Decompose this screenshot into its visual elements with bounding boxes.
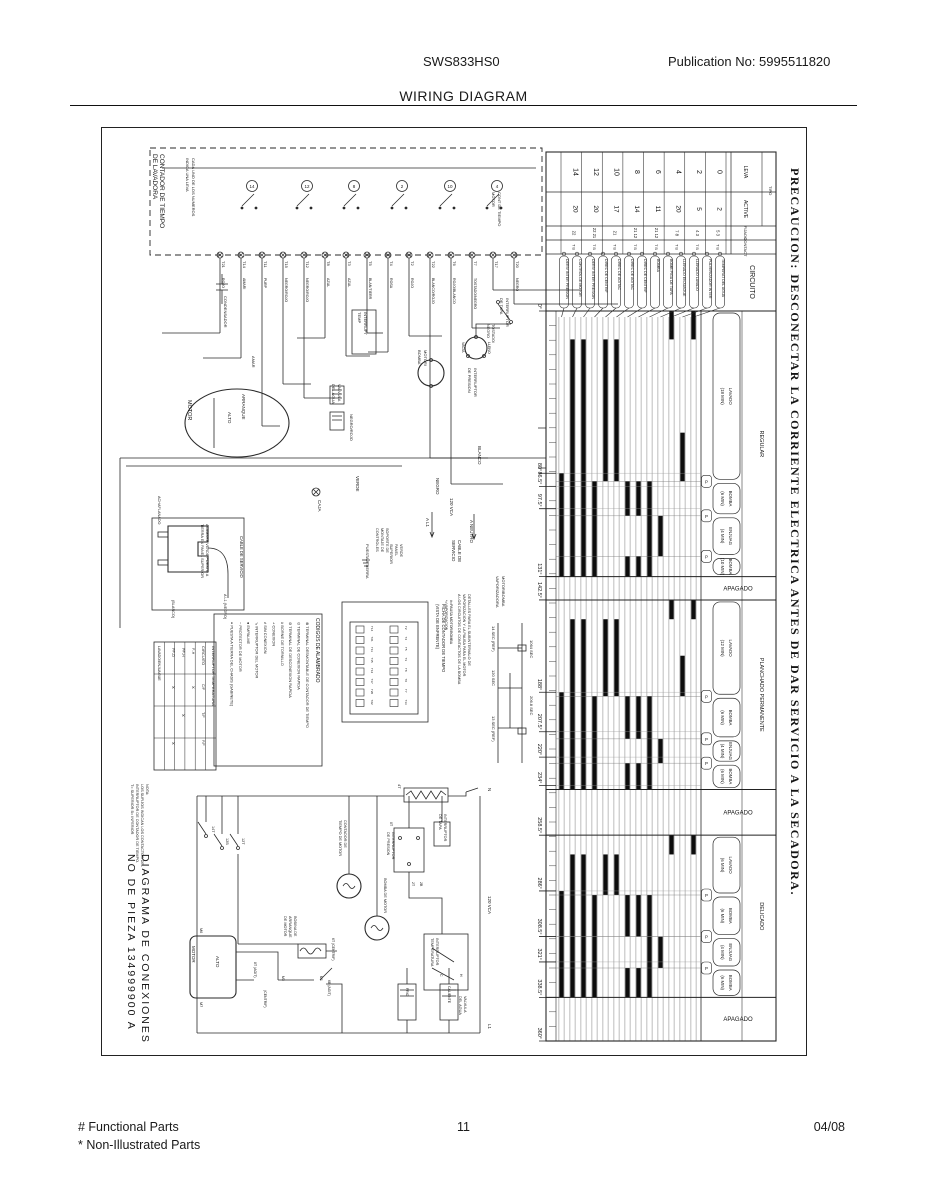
cycle-section-label: DELICADO (758, 902, 764, 931)
active-value: 17 (613, 205, 620, 213)
chart-element (617, 308, 630, 317)
cycle-off-label: APAGADO (723, 586, 753, 592)
motor-alto-label: ALTO (227, 412, 232, 424)
leva-value: 0 (716, 170, 723, 174)
wiring-diagram-box: PRECAUCION: DESCONECTAR LA CORRIENTE ELE… (101, 127, 807, 1056)
fijado-value: 4 3 (695, 230, 700, 236)
cam-closure-bar (658, 739, 662, 763)
connector-pin (390, 689, 398, 696)
connector-pin (356, 689, 364, 696)
phase-label: ENJUAG (728, 527, 733, 545)
active-value: 20 (674, 205, 681, 213)
neutral-terminal: N (487, 788, 492, 791)
temp-table-col-label: F/F (201, 740, 205, 746)
leva-value: 4 (674, 170, 681, 174)
contact-value: T B (613, 244, 617, 250)
legend-item: ⊙ TERMINAL DE CONEXION RAPIDA (297, 622, 302, 690)
water-valve-label1: VALVULA (337, 384, 342, 402)
chart-element (242, 194, 254, 206)
terminal-id-label: T3 (347, 261, 352, 266)
phase-label: ENJUAG (728, 742, 733, 760)
cold-valve-label: FRIO (405, 988, 409, 997)
green-panel-label3: SUPERIOR (389, 544, 393, 564)
contact-value: T B (633, 244, 637, 250)
chart-element (672, 308, 695, 317)
wire-color-label: AZUL (326, 278, 330, 287)
connector-pin-label: T15 (370, 658, 374, 664)
connector-pin (356, 647, 364, 654)
phase-label: LAVADO (728, 640, 733, 658)
cam-closure-bar (636, 895, 640, 937)
lid-switch-label2: DE TAPA (499, 298, 504, 315)
vaporizer-note2: VAPORIZADORA (495, 576, 500, 608)
circuit-label: CONTROL DE MOTOR (578, 259, 582, 297)
cam-closure-bar (669, 311, 673, 339)
chart-element (694, 308, 721, 317)
cam-closure-bar (581, 854, 585, 997)
cam-number: 10 (447, 184, 453, 189)
cam-contact-dot (241, 207, 244, 210)
green-ground-wire1: ALAMBRE VERDE PUESTO A (205, 524, 209, 577)
connector-pin-label: T14 (370, 626, 374, 632)
motor-arranque-label: ARRANQUE (241, 394, 246, 420)
connector-pin (390, 668, 398, 675)
terminal-12t: 12T (241, 838, 245, 845)
terminal-h: H (459, 974, 463, 977)
chart-element (440, 194, 452, 206)
legend-item: ⊘ TERMINAL DE DESCONEXION RAPIDA (288, 622, 293, 698)
contact-value: T B (695, 244, 699, 250)
pause-label: P (705, 514, 708, 519)
cycle-off-label: APAGADO (723, 810, 753, 816)
lower-lid-label1: INTERRUPTOR (443, 814, 447, 842)
lower-valve-label1: VALVULA (463, 996, 467, 1013)
contact-value: T B (674, 244, 678, 250)
legend-item: ⊗ TERMINAL DESMONTABLE DE CONTADOR DE TI… (305, 622, 310, 728)
phase-duration-label: (12 MIN) (720, 640, 725, 658)
pressure-switch-label2: DE PRESION (467, 368, 472, 393)
pause-label: P (705, 966, 708, 971)
circuit-label: BOMBA (656, 259, 660, 273)
terminal-12b: 12B (225, 838, 229, 845)
cam-contact-dot (453, 207, 456, 210)
wire-color-label: BLAN/TIERR (368, 278, 372, 300)
title-rule (70, 105, 857, 106)
nota-line1: NOTA: (145, 784, 149, 795)
fijado-value: 22 (571, 231, 576, 236)
degree-label: 131° (536, 563, 542, 574)
active-value: 2 (716, 207, 723, 211)
active-value: 20 (571, 205, 578, 213)
leva-value: 14 (571, 168, 578, 176)
cam-closure-bar (691, 600, 695, 619)
cam-number: 14 (249, 184, 255, 189)
cam-closure-bar (625, 696, 629, 739)
connector-pin (356, 637, 364, 644)
wire-color-label: AZUL (347, 278, 351, 287)
connector-pin-label: T20 (370, 689, 374, 695)
page-title: WIRING DIAGRAM (0, 88, 927, 104)
phase-duration-label: (10 MIN) (720, 558, 725, 576)
white-plug-label: (BLANCO) (171, 600, 175, 619)
timing-t4: 13 SEC (REF) (491, 716, 496, 742)
phase-label: BOMBA (728, 710, 733, 726)
connector-pin (390, 626, 398, 633)
pressure-switch-label1: INTERRUPTOR (473, 368, 478, 397)
active-value: 11 (654, 206, 661, 213)
lid-switch-label1: INTERRUPTOR (505, 298, 510, 327)
timing-note1: DETALLES PARA EL SUBINTERVALO DE (467, 594, 471, 666)
leva-value: 8 (633, 170, 640, 174)
pause-label: P (705, 935, 708, 940)
cam-closure-bar (559, 891, 563, 997)
cam-closure-bar (592, 895, 596, 997)
contact-value: T B (654, 244, 658, 250)
phase-duration-label: (4 MIN) (720, 744, 725, 759)
cam-closure-bar (658, 937, 662, 968)
wire-color-label: BLANCO/ROJO (431, 278, 435, 304)
timer-title-line2: DE LAVADORA (151, 154, 158, 200)
amar-wire-label: AMAR (251, 356, 256, 368)
footer-page-number: 11 (0, 1120, 927, 1134)
to-neutral-label: A NEUTRO (469, 520, 474, 544)
phase-label: LAVADO (728, 857, 733, 875)
phase-cell (713, 765, 740, 787)
connector-pin-label: T21 (370, 637, 374, 643)
circuit-label: LLENADO ENJUAGUE (682, 259, 686, 297)
terminal-id-label: T7 (473, 261, 478, 266)
cam-closure-bar (647, 696, 651, 789)
green-wire: VERDE (355, 476, 360, 492)
plug-view-box (342, 602, 428, 722)
connector-pin (356, 658, 364, 665)
vacia-label: VACIA (461, 342, 465, 353)
connector-pin (390, 700, 398, 707)
cam-contact-dot (486, 207, 489, 210)
chart-element (392, 194, 404, 206)
cam-closure-bar (559, 473, 563, 576)
phase-duration-label: (6 MIN) (720, 908, 725, 923)
service-cable-label: CABLE DE SERVICIO (239, 536, 244, 579)
white-wire: BLANCO (477, 446, 482, 465)
black-red-wire: NEGRO/ROJO (349, 414, 354, 441)
green-panel-label2: PANEL (394, 544, 398, 556)
fijado-value: 21 (613, 231, 618, 236)
phase-duration-label: (4 MIN) (720, 945, 725, 960)
cam-closure-bar (625, 895, 629, 937)
circuito-header: CIRCUITO (748, 265, 755, 299)
motor-timer-label2: TIEMPO DE MOTOR (338, 820, 342, 856)
degree-label: 86.5° (536, 471, 542, 484)
cam-closure-bar (592, 696, 596, 789)
active-header: ACTIVE (742, 200, 748, 219)
connector-pin-label: T12 (370, 668, 374, 674)
black-wire: NEGRO (435, 478, 440, 495)
cam-closure-bar (592, 481, 596, 576)
connector-pin (390, 658, 398, 665)
circuit-label: TEMPERAT DEL AGUA (721, 259, 725, 298)
cam-note-line1: CADA UNO DE LOS NUMEROS (191, 158, 196, 217)
temp-table-row-label: PF-D (171, 648, 175, 657)
capacitor-label: CONDENSADOR (223, 296, 228, 328)
to-l1-label: A L1 (425, 518, 430, 528)
legend-item: ≠ SIN CONEXION (263, 622, 268, 654)
water-valve-label2: DEL AGUA (331, 384, 336, 404)
manual-page: SWS833HS0 Publication No: 5995511820 WIR… (0, 0, 927, 1200)
phase-cell (713, 970, 740, 995)
degree-label: 142.5° (536, 582, 542, 598)
wire-color-label: NEGRO/ROJO (284, 278, 288, 302)
phase-cell (713, 602, 740, 694)
phase-duration-label: (6 MIN) (720, 858, 725, 873)
start-winding-label1: BOBINA DE (293, 916, 297, 937)
temp-table-title: INTERRUPTOR TEMPERATURA (211, 646, 216, 706)
cam-number: 8 (353, 184, 356, 189)
cam-closure-bar (636, 968, 640, 997)
nota-line2: LOS SUFIJOS INDICAN LOS CONTACTOS DEL (140, 784, 144, 867)
connector-pin-label: T13 (404, 700, 408, 706)
terminal-2t: 2T (411, 882, 415, 887)
phase-cell (713, 837, 740, 893)
wire-color-label: ROJO (410, 278, 414, 288)
chart-element (595, 308, 604, 317)
connector-pin-label: T2 (404, 626, 408, 630)
contact-value: T B (592, 244, 596, 250)
leva-header: LEVA (742, 166, 748, 179)
connector-pin-label: T4 (404, 637, 408, 641)
timer-title-line1: CONTADOR DE TIEMPO (158, 154, 165, 228)
motor-timer-label1: CONTADOR DE (343, 820, 347, 848)
terminal-id-label: T17 (494, 261, 499, 269)
connector-pin (356, 626, 364, 633)
chart-element (573, 308, 578, 317)
active-value: 14 (633, 205, 640, 213)
terminal-id-label: T20 (515, 261, 520, 269)
hot-valve-label: CALIENTE (447, 986, 451, 1004)
lower-temp-label1: INTERRUPTOR (435, 938, 439, 966)
plug-view-title2: (VISTA DE ENFRENTE) (435, 604, 440, 650)
timing-t1: 1064 SEC (529, 640, 534, 658)
circuit-label: DIREC DE AGITAC (630, 259, 634, 290)
leva-value: 10 (613, 168, 620, 176)
legend-title: CODIGOS DE ALAMBRADO (314, 618, 320, 683)
cam-closure-bar (614, 619, 618, 696)
pump-motor-label: BOMBA DE MOTOR (383, 878, 387, 913)
cam-closure-bar (636, 556, 640, 576)
timing-note3: A LOS CIRCUITOS DE CONTACTOS DE LA BOMBA (457, 594, 461, 685)
cam-closure-bar (647, 481, 651, 576)
vaporizer-note1: MOTOR/BOMBA (501, 576, 506, 607)
cam-contact-dot (310, 207, 313, 210)
cam-closure-bar (636, 696, 640, 739)
degree-label: 258.5° (536, 817, 542, 833)
chart-element (606, 308, 617, 317)
tipo-label: TIPO (768, 186, 773, 195)
cam-contact-dot (255, 207, 258, 210)
cam-closure-bar (603, 619, 607, 696)
cam-note-line2: INDICA UNA LEVA (185, 158, 190, 192)
black-plug-label: A L1 (NEGRO) (223, 594, 227, 620)
part-number-value: NO DE PIEZA 134999900 A (125, 854, 137, 1031)
vapor-pump-label1: MOTOR/ (423, 350, 428, 367)
cam-closure-bar (559, 692, 563, 789)
doc-publication: Publication No: 5995511820 (668, 54, 830, 69)
wire-color-label: AMARI (242, 278, 246, 289)
terminal-14t: 14T (211, 826, 215, 833)
degree-label: 188° (536, 679, 542, 690)
bracket-label2: MONTAJE DE (380, 528, 384, 553)
connector-pin-label: T6 (404, 679, 408, 683)
leva-value: 2 (695, 170, 702, 174)
leva-value: 12 (592, 168, 599, 176)
chart-element (628, 308, 643, 317)
circuit-label: DERIV INTER PRESION (591, 259, 595, 299)
contact-value: T B (716, 244, 720, 250)
lower-temp-label2: TEMPERATURA (430, 938, 434, 967)
terminal-id-label: T2 (410, 261, 415, 266)
service-cord-label2: SERVICIO (451, 540, 456, 562)
contact-value: T B (571, 244, 575, 250)
degree-label: 0° (536, 304, 542, 309)
doc-model: SWS833HS0 (423, 54, 500, 69)
wire-color-label: NEGRO/ROJO (305, 278, 309, 302)
pause-label: P (705, 479, 708, 484)
terminal-2b: 2B (419, 882, 423, 887)
connector-pin (390, 637, 398, 644)
wire-color-label: NEGRO (515, 278, 519, 291)
connector-pin-label: T8 (404, 668, 408, 672)
connector-pin (356, 700, 364, 707)
lower-lid-label2: DE TAPA (438, 814, 442, 830)
part-number-title: DIAGRAMA DE CONEXIONES (139, 854, 151, 1044)
terminal-id-label: T22 (431, 261, 436, 269)
terminal-id-label: T5 (368, 261, 373, 266)
cycle-off-label: APAGADO (723, 1017, 753, 1023)
timing-legend2: *=VAPORIZACION (444, 600, 448, 631)
cam-closure-bar (570, 339, 574, 576)
connector-pin-label: T3 (404, 658, 408, 662)
connector-pin (356, 679, 364, 686)
phase-duration-label: (6 MIN) (720, 769, 725, 784)
temp-table-col-label: T/F (201, 712, 205, 718)
cam-closure-bar (614, 854, 618, 895)
circuit-label: DIREC DE CENTRIF (643, 259, 647, 294)
m7-terminal: M7 (199, 1002, 203, 1007)
cam-closure-bar (570, 619, 574, 789)
legend-item: + CONEXION (271, 622, 276, 646)
cam-closure-bar (669, 835, 673, 854)
terminal-id-label: T6 (452, 261, 457, 266)
circuit-label: BOMB PIGA DE TAPA (669, 259, 673, 295)
circuit-label: DIREC DE CENTRIF (604, 259, 608, 294)
bracket-label3: CONTROLES (375, 528, 379, 552)
fijado-value: 7 8 (674, 230, 679, 236)
wire-color-label: ROJO/BLANCO (452, 278, 456, 304)
terminal-0t: 0T (389, 822, 393, 827)
phase-cell (713, 518, 740, 555)
degree-label: 338.5° (536, 979, 542, 995)
m6-terminal: M6 (199, 928, 203, 933)
terminal-id-label: T12 (305, 261, 310, 269)
cam-closure-bar (647, 895, 651, 997)
tan-black-wire2: NEGRO (486, 324, 490, 338)
pause-label: P (705, 737, 708, 742)
green-panel-label1: VERDE (399, 544, 403, 558)
phase-duration-label: (18 MIN) (720, 388, 725, 406)
start-winding-label2: ARRANQUE (288, 916, 292, 938)
legend-item: # BORNE DE TORNILLO (280, 622, 285, 666)
cam-contact-dot (500, 207, 503, 210)
lower-voltage-label: 120 VCA (487, 896, 492, 914)
lower-alto-label: ALTO (215, 956, 220, 968)
phase-cell (713, 939, 740, 966)
degree-label: 360° (536, 1028, 542, 1039)
wire-color-label: ROJO (221, 278, 225, 288)
active-value: 20 (592, 205, 599, 213)
temp-table-extra: LAVADO/ENJUAGUE (157, 646, 161, 681)
cam-closure-bar (625, 556, 629, 576)
contact-header: CONTACT (743, 237, 748, 257)
pause-label: P (705, 554, 708, 559)
cycle-section-label: PLANCHADO PERMANENTE (758, 658, 764, 732)
fijado-value: 21 12 (633, 228, 638, 239)
phase-label: BOMBA (728, 768, 733, 784)
temp-table-mark: X (191, 686, 196, 689)
pause-label: P (705, 761, 708, 766)
temp-table-mark: X (171, 742, 176, 745)
phase-duration-label: (6 MIN) (720, 491, 725, 506)
connector-pin (390, 647, 398, 654)
connector-pin-label: T5 (404, 647, 408, 651)
phase-cell (713, 558, 740, 574)
service-cord-label1: CABLE DE (457, 540, 462, 562)
connector-pin-label: T17 (370, 679, 374, 685)
chamfer-label: ACHAFLANADO (157, 496, 161, 525)
cam-closure-bar (680, 656, 684, 697)
lower-pressure-label2: DE PRESION (386, 832, 390, 856)
cam-number: 12 (304, 184, 310, 189)
terminal-id-label: T4 (389, 261, 394, 266)
circuit-label: DERIV INTER PRESION (565, 259, 569, 299)
phase-label: ENJUAG (728, 943, 733, 961)
phase-duration-label: (6 MIN) (720, 710, 725, 725)
leva-value: 6 (654, 170, 661, 174)
cam-closure-bar (603, 854, 607, 895)
m1-terminal: M1 (319, 976, 323, 981)
terminal-4t: 4T (397, 784, 402, 789)
phase-cell (713, 313, 740, 479)
legend-item: ~ PROTECTOR DE MOTOR (238, 622, 243, 672)
timing-t3: 14 SEC (REF) (491, 626, 496, 652)
connector-pin (356, 668, 364, 675)
green-ground-wire2: TIERRA EN PANEL SUPERIOR (200, 524, 204, 578)
circuit-label: PULVERIZADOR INTER (708, 259, 712, 299)
terminal-id-label: T11 (263, 261, 268, 268)
phase-cell (713, 698, 740, 737)
bracket-label1: SOPORTE DE (385, 528, 389, 553)
legend-item: ↘ INTERRUPTOR DEL MOTOR (255, 622, 260, 679)
fijado-value: 21 12 (654, 228, 659, 239)
schematic-labels: PRECAUCION: DESCONECTAR LA CORRIENTE ELE… (125, 154, 802, 1044)
timing-t5: 206.8 SEC (529, 696, 534, 715)
connector-pin-label: T7 (404, 689, 408, 693)
degree-label: 220° (536, 744, 542, 755)
lower-pressure-label1: INTERRUPTOR (391, 832, 395, 860)
chart-element (562, 308, 565, 317)
fijado-value: 5 3 (716, 230, 721, 236)
temp-table-circuito: CIRCUITO (201, 646, 206, 665)
connector-pin-label: T11 (370, 647, 374, 652)
